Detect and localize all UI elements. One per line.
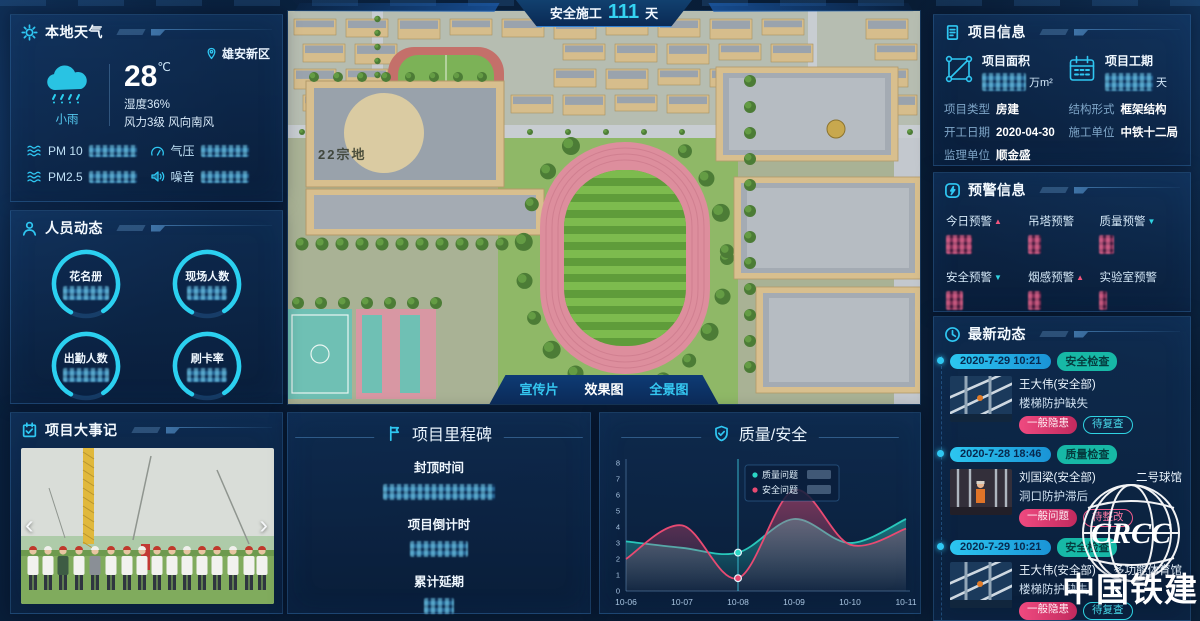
area-outline-icon: [944, 54, 974, 84]
entry-location: 二号球馆: [1136, 469, 1182, 485]
project-field: 开工日期2020-04-30: [944, 124, 1064, 140]
status-tag: 待复查: [1083, 416, 1133, 434]
field-label: 结构形式: [1068, 104, 1114, 116]
warning-label: 质量预警: [1099, 216, 1145, 228]
field-value: 中铁十二局: [1120, 127, 1178, 139]
warning-item: 质量预警▼: [1099, 212, 1178, 254]
activity-entry[interactable]: 2020-7-28 18:46 质量检查 刘国梁(安全部) 二号球馆 洞口防护滞…: [950, 445, 1182, 527]
redacted-milestone-value: [383, 484, 495, 500]
milestone-items: 封顶时间 项目倒计时 累计延期: [288, 457, 590, 615]
header-decoration: [1039, 29, 1068, 35]
svg-text:4: 4: [616, 523, 620, 532]
header-wing-left: [621, 429, 707, 438]
event-photo-carousel: ‹ ›: [21, 448, 272, 604]
air-metric: PM2.5: [27, 168, 150, 185]
warnings-panel: 预警信息 今日预警▲ 吊塔预警 质量预警▼ 安全预警▼ 烟感预警▲ 实验室预警: [933, 172, 1191, 312]
redacted-warning-value: [1028, 291, 1041, 310]
entry-issue: 楼梯防护缺失: [1019, 395, 1182, 411]
person-icon: [21, 220, 38, 237]
project-info-panel: 项目信息 项目面积 万m² 项目工期 天 项目类型房建 结构形式框架结构 开工日…: [933, 14, 1191, 166]
activity-panel: 最新动态 2020-7-29 10:21 安全检查 王大伟(安全部) 楼梯防护缺…: [933, 316, 1191, 621]
calendar-icon: [1067, 54, 1097, 84]
status-tag: 一般隐患: [1019, 602, 1077, 620]
project-info-title: 项目信息: [968, 22, 1026, 42]
wind: 风力3级 风向南风: [124, 114, 214, 130]
header-line: [151, 29, 272, 36]
gauge-label: 现场人数: [169, 268, 245, 284]
redacted-warning-value: [1099, 291, 1107, 310]
weather-panel: 本地天气 雄安新区 小雨 28℃ 湿度36% 风力3级 风向南风 PM 10 气…: [10, 14, 283, 202]
svg-text:10-06: 10-06: [615, 597, 637, 607]
group-photo: [21, 448, 274, 604]
header-decoration: [116, 29, 145, 35]
field-label: 施工单位: [1068, 127, 1114, 139]
svg-text:6: 6: [616, 491, 620, 500]
area-label: 项目面积: [982, 52, 1053, 69]
redacted-metric-value: [89, 171, 137, 183]
header-decoration: [1039, 331, 1068, 337]
indoor-work-photo[interactable]: [950, 469, 1012, 515]
redacted-metric-value: [201, 145, 249, 157]
location-pin-icon: [205, 47, 218, 60]
svg-text:1: 1: [616, 571, 620, 580]
milestone-label: 项目倒计时: [408, 514, 471, 533]
status-tag: 待整改: [1083, 509, 1133, 527]
redacted-warning-value: [1028, 235, 1041, 254]
redacted-gauge-value: [187, 286, 227, 300]
weather-gear-icon: [21, 24, 38, 41]
redacted-warning-value: [1099, 235, 1114, 254]
entry-category-pill: 质量检查: [1057, 445, 1117, 464]
top-banner: 安全施工 111 天: [287, 0, 921, 24]
warning-item: 安全预警▼: [946, 268, 1028, 310]
entry-tags: 一般问题待整改: [1019, 509, 1182, 527]
metric-label: 气压: [171, 142, 195, 159]
warning-label: 吊塔预警: [1028, 216, 1074, 228]
aerial-render: 22宗地: [288, 11, 921, 405]
view-button-3[interactable]: 全景图: [650, 379, 689, 398]
carousel-next-icon[interactable]: ›: [259, 512, 268, 538]
activity-entry[interactable]: 2020-7-29 10:21 安全检查 王大伟(安全部) 多功能体育馆 楼梯防…: [950, 538, 1182, 620]
gauge-label: 出勤人数: [48, 350, 124, 366]
events-title: 项目大事记: [45, 420, 118, 440]
personnel-gauge: 刷卡率: [169, 328, 245, 404]
personnel-gauges: 花名册 现场人数 出勤人数 刷卡率: [11, 242, 282, 404]
svg-text:7: 7: [616, 475, 620, 484]
entry-datetime-pill: 2020-7-29 10:21: [950, 540, 1051, 555]
quality-safety-panel: 质量/安全 01234567810-0610-0710-0810-0910-10…: [599, 412, 921, 614]
pressure-icon: [150, 144, 165, 157]
redacted-warning-value: [946, 291, 963, 310]
trend-icon: ▲: [1076, 273, 1084, 282]
svg-text:5: 5: [616, 507, 620, 516]
warning-label: 实验室预警: [1099, 272, 1157, 284]
svg-text:10-10: 10-10: [839, 597, 861, 607]
status-tag: 待复查: [1083, 602, 1133, 620]
entry-person: 王大伟(安全部): [1019, 376, 1096, 392]
entry-category-pill: 安全检查: [1057, 538, 1117, 557]
weather-main: 小雨 28℃ 湿度36% 风力3级 风向南风: [29, 60, 272, 130]
air-metrics: PM 10 气压 PM2.5 噪音: [27, 142, 272, 185]
gauge-label: 花名册: [48, 268, 124, 284]
field-value: 框架结构: [1120, 104, 1166, 116]
redacted-duration-value: [1105, 73, 1153, 91]
field-value: 顺金盛: [996, 150, 1031, 162]
view-switch-bar: 宣传片效果图全景图: [489, 375, 718, 404]
personnel-gauge: 现场人数: [169, 246, 245, 322]
warning-item: 烟感预警▲: [1028, 268, 1099, 310]
safety-days-prefix: 安全施工: [550, 3, 602, 22]
temperature-unit: ℃: [157, 60, 170, 74]
view-button-2[interactable]: 效果图: [584, 379, 623, 398]
trend-icon: ▲: [994, 217, 1002, 226]
banner-wing-left: [294, 3, 499, 12]
document-icon: [944, 24, 961, 41]
project-field: 结构形式框架结构: [1068, 101, 1180, 117]
field-label: 监理单位: [944, 150, 990, 162]
warning-grid: 今日预警▲ 吊塔预警 质量预警▼ 安全预警▼ 烟感预警▲ 实验室预警: [934, 204, 1190, 310]
header-wing-right: [498, 429, 583, 438]
milestone-title: 项目里程碑: [412, 421, 492, 445]
banner-wing-right: [708, 3, 913, 12]
rain-cloud-icon: [41, 64, 93, 104]
project-area-stat: 项目面积 万m²: [944, 52, 1057, 91]
entry-category-pill: 安全检查: [1057, 352, 1117, 371]
redacted-milestone-value: [424, 598, 454, 614]
warning-label: 今日预警: [946, 216, 992, 228]
milestone-label: 封顶时间: [383, 457, 495, 476]
milestone-item: 项目倒计时: [408, 514, 471, 558]
header-line: [166, 427, 273, 434]
header-line: [1074, 187, 1180, 194]
safety-days-count: 111: [608, 2, 639, 22]
warning-label: 安全预警: [946, 272, 992, 284]
air-metric: PM 10: [27, 142, 150, 159]
svg-text:8: 8: [616, 459, 620, 468]
redacted-gauge-value: [63, 368, 109, 382]
redacted-gauge-value: [187, 368, 227, 382]
status-tag: 一般隐患: [1019, 416, 1077, 434]
svg-text:10-08: 10-08: [727, 597, 749, 607]
redacted-milestone-value: [410, 541, 468, 557]
personnel-title: 人员动态: [45, 218, 103, 238]
redacted-gauge-value: [63, 286, 109, 300]
svg-text:3: 3: [616, 539, 620, 548]
safety-days-badge: 安全施工 111 天: [516, 0, 692, 27]
entry-person: 王大伟(安全部): [1019, 562, 1096, 578]
project-fields: 项目类型房建 结构形式框架结构 开工日期2020-04-30 施工单位中铁十二局…: [934, 95, 1190, 163]
humidity: 湿度36%: [124, 96, 214, 112]
redacted-metric-value: [201, 171, 249, 183]
header-decoration: [116, 225, 145, 231]
field-label: 项目类型: [944, 104, 990, 116]
noise-icon: [150, 170, 165, 183]
entry-person: 刘国梁(安全部): [1019, 469, 1096, 485]
redacted-area-value: [982, 73, 1026, 91]
divider: [109, 64, 110, 126]
field-label: 开工日期: [944, 127, 990, 139]
activity-entry[interactable]: 2020-7-29 10:21 安全检查 王大伟(安全部) 楼梯防护缺失 一般隐…: [950, 352, 1182, 434]
project-field: 施工单位中铁十二局: [1068, 124, 1180, 140]
project-duration-stat: 项目工期 天: [1067, 52, 1180, 91]
weather-title: 本地天气: [45, 22, 103, 42]
warnings-title: 预警信息: [968, 180, 1026, 200]
quality-safety-chart: 01234567810-0610-0710-0810-0910-1010-11质…: [602, 449, 918, 616]
warning-item: 吊塔预警: [1028, 212, 1099, 254]
field-value: 2020-04-30: [996, 127, 1055, 139]
entry-location: 多功能体育馆: [1113, 562, 1182, 578]
metric-label: PM 10: [48, 144, 83, 158]
warning-item: 今日预警▲: [946, 212, 1028, 254]
header-decoration: [131, 427, 160, 433]
header-wing-right: [813, 429, 899, 438]
pm-icon: [27, 170, 42, 183]
temperature-value: 28: [124, 60, 157, 93]
milestone-photo-panel: 项目大事记 ‹ ›: [10, 412, 283, 614]
event-note-icon: [21, 422, 38, 439]
svg-text:10-09: 10-09: [783, 597, 805, 607]
activity-title: 最新动态: [968, 324, 1026, 344]
safety-days-suffix: 天: [645, 3, 658, 22]
duration-unit: 天: [1156, 77, 1167, 89]
personnel-gauge: 出勤人数: [48, 328, 124, 404]
air-metric: 噪音: [150, 168, 273, 185]
trend-icon: ▼: [1147, 217, 1155, 226]
milestone-item: 累计延期: [414, 571, 464, 615]
flag-icon: [386, 425, 403, 442]
shield-check-icon: [713, 425, 730, 442]
milestone-label: 累计延期: [414, 571, 464, 590]
milestone-item: 封顶时间: [383, 457, 495, 501]
entry-datetime-pill: 2020-7-28 18:46: [950, 447, 1051, 462]
alert-icon: [944, 182, 961, 199]
entry-issue: 洞口防护滞后: [1019, 488, 1182, 504]
project-stats: 项目面积 万m² 项目工期 天: [934, 46, 1190, 95]
trend-icon: ▼: [994, 273, 1002, 282]
gauge-label: 刷卡率: [169, 350, 245, 366]
duration-label: 项目工期: [1105, 52, 1167, 69]
project-field: 监理单位顺金盛: [944, 147, 1064, 163]
entry-datetime-pill: 2020-7-29 10:21: [950, 354, 1051, 369]
header-decoration: [1039, 187, 1068, 193]
personnel-panel: 人员动态 花名册 现场人数 出勤人数 刷卡率: [10, 210, 283, 404]
location-chip: 雄安新区: [205, 45, 270, 62]
scaffolding-photo[interactable]: [950, 562, 1012, 608]
svg-text:10-11: 10-11: [895, 597, 916, 607]
project-field: 项目类型房建: [944, 101, 1064, 117]
area-unit: 万m²: [1029, 77, 1053, 89]
field-value: 房建: [996, 104, 1019, 116]
warning-label: 烟感预警: [1028, 272, 1074, 284]
scaffolding-photo[interactable]: [950, 376, 1012, 422]
plot-label: 22宗地: [318, 147, 366, 162]
weather-condition: 小雨: [29, 111, 105, 127]
entry-tags: 一般隐患待复查: [1019, 602, 1182, 620]
location-label: 雄安新区: [222, 45, 270, 62]
metric-label: PM2.5: [48, 170, 83, 184]
svg-text:0: 0: [616, 587, 620, 596]
header-line: [1074, 331, 1180, 338]
svg-text:质量问题: 质量问题: [762, 469, 798, 480]
header-wing-left: [295, 429, 380, 438]
metric-label: 噪音: [171, 168, 195, 185]
site-aerial-view: 22宗地 宣传片效果图全景图: [287, 10, 921, 405]
svg-text:安全问题: 安全问题: [762, 484, 798, 495]
header-line: [1074, 29, 1180, 36]
view-button-1[interactable]: 宣传片: [519, 379, 558, 398]
redacted-warning-value: [946, 235, 972, 254]
warning-item: 实验室预警: [1099, 268, 1178, 310]
personnel-gauge: 花名册: [48, 246, 124, 322]
air-metric: 气压: [150, 142, 273, 159]
carousel-prev-icon[interactable]: ‹: [25, 512, 34, 538]
svg-text:2: 2: [616, 555, 620, 564]
entry-tags: 一般隐患待复查: [1019, 416, 1182, 434]
header-line: [151, 225, 272, 232]
redacted-metric-value: [89, 145, 137, 157]
status-tag: 一般问题: [1019, 509, 1077, 527]
milestone-panel: 项目里程碑 封顶时间 项目倒计时 累计延期: [287, 412, 591, 614]
chart-title: 质量/安全: [739, 421, 807, 445]
pm-icon: [27, 144, 42, 157]
activity-entries: 2020-7-29 10:21 安全检查 王大伟(安全部) 楼梯防护缺失 一般隐…: [934, 348, 1190, 621]
svg-text:10-07: 10-07: [671, 597, 693, 607]
entry-issue: 楼梯防护缺失: [1019, 581, 1182, 597]
clock-icon: [944, 326, 961, 343]
